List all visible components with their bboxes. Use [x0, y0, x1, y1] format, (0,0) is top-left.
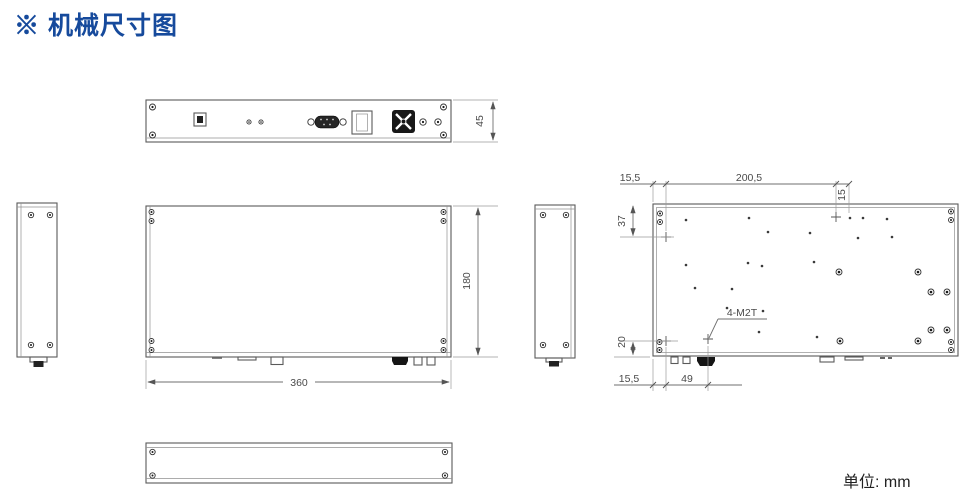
- dim-15-label: 15: [836, 189, 848, 201]
- bottom-edge-features: [212, 357, 435, 365]
- dim-180: 180: [453, 206, 498, 357]
- led-indicators: [247, 120, 263, 124]
- dim-37: 37: [616, 206, 674, 237]
- serial-port: [308, 116, 346, 128]
- dim-37-label: 37: [616, 215, 628, 227]
- dim-200-5-label: 200,5: [736, 172, 762, 184]
- bottom-plate-view: 15,5 200,5 15 37 20 15,5 49 4-M2T: [614, 172, 958, 391]
- right-side-view: [535, 205, 575, 367]
- terminal-screws: [420, 119, 441, 125]
- drawing-canvas: 45: [0, 0, 972, 501]
- bottom-connector: [697, 357, 715, 366]
- hole-center-marks: [661, 212, 841, 346]
- corner-screws: [150, 449, 448, 478]
- dim-15-5-bottom-label: 15,5: [619, 373, 640, 385]
- usb-port: [194, 113, 206, 126]
- dim-45-label: 45: [474, 115, 486, 127]
- mounting-foot: [546, 358, 562, 367]
- front-panel-view: [146, 443, 452, 483]
- mounting-holes: [685, 217, 894, 339]
- dim-top-row: 15,5 200,5 15: [620, 172, 852, 231]
- dim-360-label: 360: [290, 377, 308, 389]
- dim-49-label: 49: [681, 373, 693, 385]
- power-switch: [352, 111, 372, 134]
- unit-label: 单位: mm: [843, 468, 911, 492]
- bottom-edge-features: [671, 357, 892, 366]
- dim-15-5-top-label: 15,5: [620, 172, 641, 184]
- bottom-connector: [392, 357, 408, 365]
- rear-panel-view: 45: [146, 100, 498, 142]
- thread-callout-label: 4-M2T: [727, 307, 758, 319]
- panel-screws: [836, 269, 950, 344]
- corner-screws: [540, 212, 568, 347]
- mounting-foot: [30, 357, 47, 367]
- thread-callout-4-m2t: 4-M2T: [709, 307, 767, 338]
- corner-screws: [149, 210, 446, 353]
- dim-20-label: 20: [616, 336, 628, 348]
- dim-20: 20: [614, 336, 678, 357]
- power-connector: [392, 110, 415, 133]
- left-side-view: [17, 203, 57, 367]
- corner-screws: [657, 209, 954, 353]
- corner-screws: [28, 212, 52, 347]
- front-view: 360 180: [146, 206, 498, 389]
- dim-45: 45: [453, 100, 498, 142]
- dim-180-label: 180: [461, 272, 473, 290]
